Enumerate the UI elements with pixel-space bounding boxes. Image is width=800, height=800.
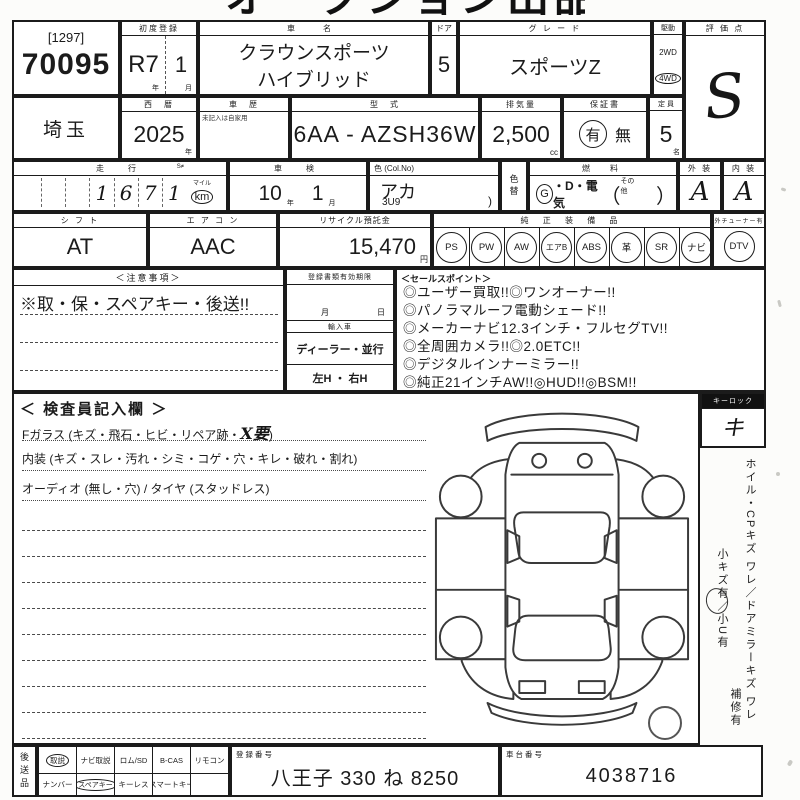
accessory-spare-key-circled: スペアキー xyxy=(77,779,115,791)
accessory-keyless: キーレス xyxy=(115,773,153,795)
cropped-title-clip: オークション出品票 xyxy=(225,0,585,15)
car-name-line1: クラウンスポーツ xyxy=(200,38,428,65)
scan-artifact xyxy=(781,187,787,192)
shaken-month-suffix: 月 xyxy=(328,184,338,210)
notes-ruled-line xyxy=(20,342,278,343)
sales-line: ◎パノラマルーフ電動シェード!! xyxy=(403,302,760,320)
equipment-icon-pw: PW xyxy=(471,232,502,263)
inspector-area: ＜ 検査員記入欄 ＞ Fガラス (キズ・飛石・ヒビ・リペア跡・X要) 内装 (キ… xyxy=(12,392,700,745)
registration-number-value: 八王子 330 ね 8250 xyxy=(271,762,460,791)
notes-ruled-line xyxy=(20,370,278,371)
inspector-stamp-circle xyxy=(648,706,682,740)
inspector-label: ＜ 検査員記入欄 ＞ xyxy=(20,398,168,419)
grade-box: グ レ ー ド スポーツZ xyxy=(458,20,652,96)
accessory-remote: リモコン xyxy=(191,747,228,773)
equipment-icon-navi: ナビ xyxy=(681,232,712,263)
auction-bracket: [1297] xyxy=(14,30,118,45)
car-diagram xyxy=(428,400,696,730)
displacement-suffix: cc xyxy=(550,148,558,157)
car-name-line2: ハイブリッド xyxy=(200,65,428,92)
accessory-rom-sd: ロム/SD xyxy=(115,747,153,773)
chassis-number-box: 車台番号 4038716 xyxy=(500,745,763,797)
accessory-navi-manual: ナビ取説 xyxy=(77,747,115,773)
evaluation-label: 評 価 点 xyxy=(686,22,764,36)
side-note-wheel: ホイル・CPキズ ワレ／ドアミラーキズ ワレ xyxy=(742,458,758,748)
mileage-small-note: S≠ xyxy=(177,164,184,170)
model-year-box: 西 暦 2025 年 xyxy=(120,96,198,160)
door-value: 5 xyxy=(438,52,450,78)
kousouhin-box: 後送品 xyxy=(12,745,37,797)
chassis-number-value: 4038716 xyxy=(586,765,678,788)
capacity-box: 定 員 5 名 xyxy=(648,96,684,160)
inspection-blank-line xyxy=(22,686,426,687)
first-reg-month: 1 xyxy=(175,52,187,78)
inspection-ruled-line xyxy=(22,470,426,471)
inspection-interior-text: 内装 (キズ・スレ・汚れ・シミ・コゲ・穴・キレ・破れ・割れ) xyxy=(22,450,357,467)
side-note-small-scratch: 小キズ有／小U有 xyxy=(714,548,730,708)
inspection-blank-line xyxy=(22,608,426,609)
accessory-bcas: B-CAS xyxy=(153,747,191,773)
documents-box: 登録書類有効期限 月 日 輸入車 ディーラー・並行 左H ・ 右H xyxy=(285,268,395,392)
mileage-unit-km-selected: km xyxy=(191,190,214,204)
equipment-box: 純 正 装 備 品 PS PW AW エアB ABS 革 SR ナビ xyxy=(432,212,712,268)
kousouhin-label: 後送品 xyxy=(18,752,31,791)
registration-number-box: 登録番号 八王子 330 ね 8250 xyxy=(230,745,500,797)
mileage-label: 走 行 xyxy=(14,162,226,176)
doc-day-label: 日 xyxy=(377,307,385,318)
car-name-box: 車 名 クラウンスポーツ ハイブリッド xyxy=(198,20,430,96)
model-code-box: 型 式 6AA - AZSH36W xyxy=(290,96,480,160)
auction-number-box: [1297] 70095 xyxy=(12,20,120,96)
accessory-number-plate: ナンバー xyxy=(39,773,77,795)
drive-4wd-selected: 4WD xyxy=(655,73,681,84)
shift-box: シ フ ト AT xyxy=(12,212,148,268)
doc-dealer-parallel: ディーラー・並行 xyxy=(296,341,383,357)
doc-import-label: 輸入車 xyxy=(287,321,393,332)
warranty-box: 保証書 有 無 xyxy=(562,96,648,160)
color-box: 色 (Col.No) アカ 3U9 ) xyxy=(368,160,500,212)
first-reg-year-suffix: 年 xyxy=(152,83,159,93)
equipment-icon-sunroof: SR xyxy=(646,232,677,263)
doc-handle: 左H ・ 右H xyxy=(313,370,368,386)
dtv-box: 外チューナー有 DTV xyxy=(712,212,766,268)
recycle-fee-label: リサイクル預託金 xyxy=(280,214,430,228)
inspection-blank-line xyxy=(22,712,426,713)
inspection-blank-line xyxy=(22,660,426,661)
exterior-box: 外 装 A xyxy=(678,160,722,212)
recycle-fee-suffix: 円 xyxy=(420,254,428,265)
car-history-label: 車 歴 xyxy=(200,98,288,112)
scan-artifact xyxy=(776,472,780,476)
accessory-manual-circled: 取説 xyxy=(46,754,69,767)
shaken-month: 1 xyxy=(312,182,324,206)
prefecture-value: 埼玉 xyxy=(43,115,89,142)
sales-line: ◎ユーザー買取!!◎ワンオーナー!! xyxy=(403,284,760,302)
mileage-unit-mile: マイル xyxy=(184,178,220,187)
keylock-mark: キ xyxy=(720,409,745,443)
accessory-smart-key: スマートキー xyxy=(153,773,191,795)
drive-label: 駆動 xyxy=(654,22,682,35)
displacement-value: 2,500 xyxy=(492,121,550,148)
car-name-label: 車 名 xyxy=(200,22,428,36)
capacity-value: 5 xyxy=(660,121,673,148)
first-reg-year: R7 xyxy=(128,51,159,79)
sales-line: ◎純正21インチAW!!◎HUD!!◎BSM!! xyxy=(403,374,760,392)
warranty-no: 無 xyxy=(615,122,631,146)
equipment-icon-dtv: DTV xyxy=(724,231,755,262)
page-title: オークション出品票 xyxy=(225,0,585,15)
capacity-suffix: 名 xyxy=(673,147,680,157)
fuel-label: 燃 料 xyxy=(530,162,676,176)
warranty-yes-selected: 有 xyxy=(579,120,607,148)
recycle-fee-box: リサイクル預託金 15,470 円 xyxy=(278,212,432,268)
aircon-value: AAC xyxy=(190,234,235,260)
interior-box: 内 装 A xyxy=(722,160,766,212)
evaluation-score-value: S xyxy=(701,60,749,134)
notes-box: ＜注意事項＞ ※取・保・スペアキー・後送!! xyxy=(12,268,285,392)
sales-points-box: ＜セールスポイント＞ ◎ユーザー買取!!◎ワンオーナー!! ◎パノラマルーフ電動… xyxy=(395,268,766,392)
fuel-paren-open: （ xyxy=(600,180,620,209)
color-paren: ) xyxy=(488,194,492,208)
aircon-label: エ ア コ ン xyxy=(150,214,276,228)
sales-line: ◎全周囲カメラ!!◎2.0ETC!! xyxy=(403,338,760,356)
inspection-blank-line xyxy=(22,738,426,739)
first-reg-month-suffix: 月 xyxy=(185,83,192,93)
color-change-box: 色替 xyxy=(500,160,528,212)
fuel-paren-close: ） xyxy=(656,180,676,209)
fuel-other: その他 xyxy=(620,176,638,196)
model-year-suffix: 年 xyxy=(185,147,192,157)
model-year-value: 2025 xyxy=(133,121,184,148)
drive-2wd: 2WD xyxy=(659,48,677,57)
fuel-rest: ・D・電気 xyxy=(553,177,600,211)
side-note-repair: 補修有 xyxy=(727,688,743,744)
equipment-icon-abs: ABS xyxy=(576,232,607,263)
color-label: 色 (Col.No) xyxy=(370,162,498,176)
recycle-fee-value: 15,470 xyxy=(349,234,416,260)
notes-label: ＜注意事項＞ xyxy=(14,270,283,286)
displacement-box: 排気量 2,500 cc xyxy=(480,96,562,160)
color-code: 3U9 xyxy=(382,197,400,208)
drive-box: 駆動 2WD 4WD xyxy=(652,20,684,96)
keylock-box: キーロック キ xyxy=(700,392,766,448)
shift-value: AT xyxy=(67,234,93,260)
model-code-value: 6AA - AZSH36W xyxy=(293,121,476,148)
inspection-ruled-line xyxy=(22,440,426,441)
scan-artifact xyxy=(777,300,782,308)
inspection-blank-line xyxy=(22,582,426,583)
car-history-note: 未記入は自家用 xyxy=(202,112,248,122)
auction-sheet: オークション出品票 [1297] 70095 初度登録 R7 1 年 月 車 名… xyxy=(0,0,800,800)
door-box: ドア 5 xyxy=(430,20,458,96)
equipment-label: 純 正 装 備 品 xyxy=(434,214,710,228)
sales-line: ◎デジタルインナーミラー!! xyxy=(403,356,760,374)
mileage-digit-2: 6 xyxy=(120,181,133,205)
shaken-year-suffix: 年 xyxy=(286,184,296,210)
sales-line: ◎メーカーナビ12.3インチ・フルセグTV!! xyxy=(403,320,760,338)
accessory-empty xyxy=(191,773,228,795)
shaken-box: 車 検 10 年 1 月 xyxy=(228,160,368,212)
mileage-digit-4: 1 xyxy=(168,181,181,205)
equipment-icon-ps: PS xyxy=(436,232,467,263)
equipment-icon-airbag: エアB xyxy=(541,232,572,263)
aircon-box: エ ア コ ン AAC xyxy=(148,212,278,268)
mileage-digit-3: 7 xyxy=(144,181,157,205)
door-label: ドア xyxy=(432,22,456,36)
first-registration-label: 初度登録 xyxy=(122,22,196,36)
inspection-blank-line xyxy=(22,634,426,635)
inspection-blank-line xyxy=(22,556,426,557)
first-registration-box: 初度登録 R7 1 年 月 xyxy=(120,20,198,96)
equipment-icon-leather: 革 xyxy=(611,232,642,263)
auction-number: 70095 xyxy=(14,48,118,82)
shaken-year: 10 xyxy=(258,182,281,206)
prefecture-box: 埼玉 xyxy=(12,96,120,160)
fuel-gasoline-selected: G xyxy=(536,184,553,204)
grade-value: スポーツZ xyxy=(509,51,601,80)
mileage-box: 走 行 S≠ 1 6 7 1 マイル km xyxy=(12,160,228,212)
doc-month-label: 月 xyxy=(321,307,329,318)
evaluation-score-box: 評 価 点 S xyxy=(684,20,766,160)
mileage-digit-1: 1 xyxy=(96,181,109,205)
interior-grade: A xyxy=(735,177,754,207)
inspection-audio-text: オーディオ (無し・穴) / タイヤ (スタッドレス) xyxy=(22,480,269,497)
grade-label: グ レ ー ド xyxy=(460,22,650,36)
equipment-icon-aw: AW xyxy=(506,232,537,263)
shaken-label: 車 検 xyxy=(230,162,366,176)
accessories-grid: 取説 ナビ取説 ロム/SD B-CAS リモコン ナンバー スペアキー キーレス… xyxy=(37,745,230,797)
exterior-grade: A xyxy=(691,177,710,207)
color-change-label: 色替 xyxy=(508,174,521,198)
inspection-ruled-line xyxy=(22,500,426,501)
shift-label: シ フ ト xyxy=(14,214,146,228)
scan-artifact xyxy=(787,759,793,766)
notes-ruled-line xyxy=(20,314,278,315)
fuel-box: 燃 料 G ・D・電気 （ その他 ） xyxy=(528,160,678,212)
notes-line1: ※取・保・スペアキー・後送!! xyxy=(20,290,249,315)
car-history-box: 車 歴 未記入は自家用 xyxy=(198,96,290,160)
inspection-blank-line xyxy=(22,530,426,531)
